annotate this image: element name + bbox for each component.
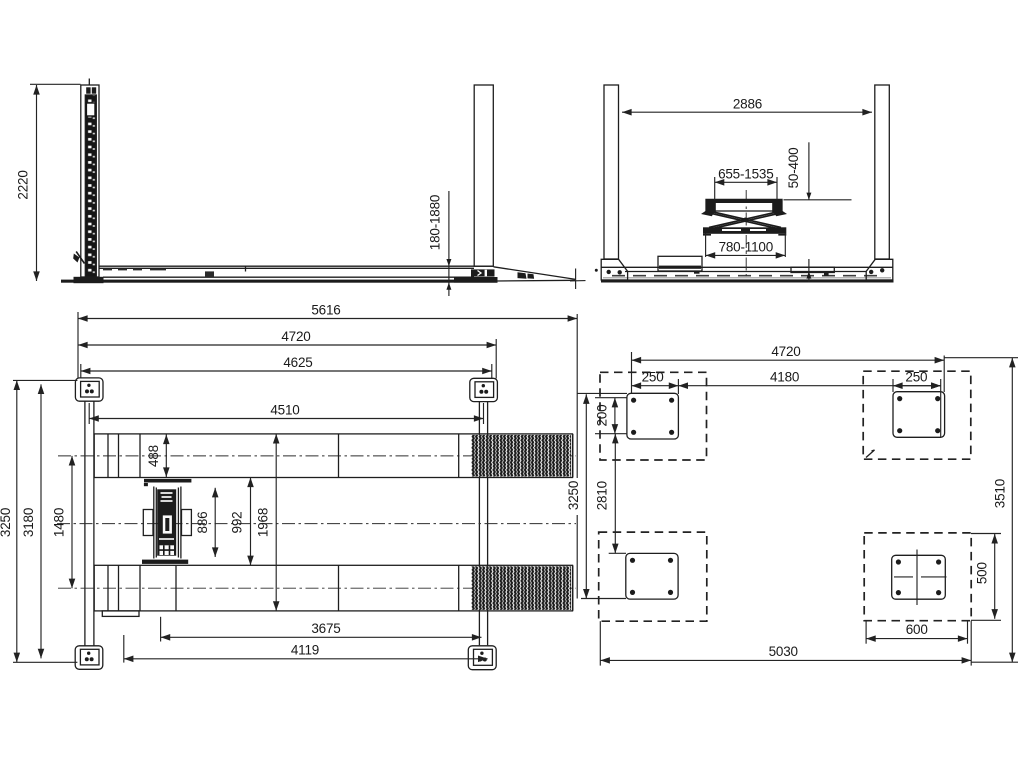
svg-text:780-1100: 780-1100 [719,240,773,255]
svg-text:180-1880: 180-1880 [428,195,443,250]
svg-text:992: 992 [230,512,245,534]
svg-text:600: 600 [906,622,928,637]
svg-text:3250: 3250 [566,481,581,510]
svg-text:250: 250 [905,370,927,385]
svg-text:3250: 3250 [0,508,13,537]
svg-text:488: 488 [146,445,161,467]
svg-text:4720: 4720 [771,344,800,359]
svg-text:4119: 4119 [291,643,319,658]
svg-text:655-1535: 655-1535 [718,167,773,182]
svg-text:3675: 3675 [311,621,340,636]
svg-text:50-400: 50-400 [786,148,801,189]
svg-text:4510: 4510 [270,403,299,418]
svg-text:2220: 2220 [16,170,31,199]
svg-text:200: 200 [595,405,610,427]
svg-text:886: 886 [195,512,210,534]
svg-text:4180: 4180 [770,370,799,385]
svg-text:500: 500 [974,562,989,584]
svg-text:3510: 3510 [993,479,1008,508]
svg-text:1480: 1480 [52,508,67,537]
svg-text:1968: 1968 [256,508,271,537]
svg-text:3180: 3180 [21,508,36,537]
svg-text:2810: 2810 [595,481,610,510]
svg-text:4720: 4720 [281,329,310,344]
svg-text:4625: 4625 [283,355,312,370]
svg-text:2886: 2886 [733,97,762,112]
svg-text:5616: 5616 [311,303,340,318]
svg-text:5030: 5030 [769,644,798,659]
svg-text:250: 250 [642,370,664,385]
